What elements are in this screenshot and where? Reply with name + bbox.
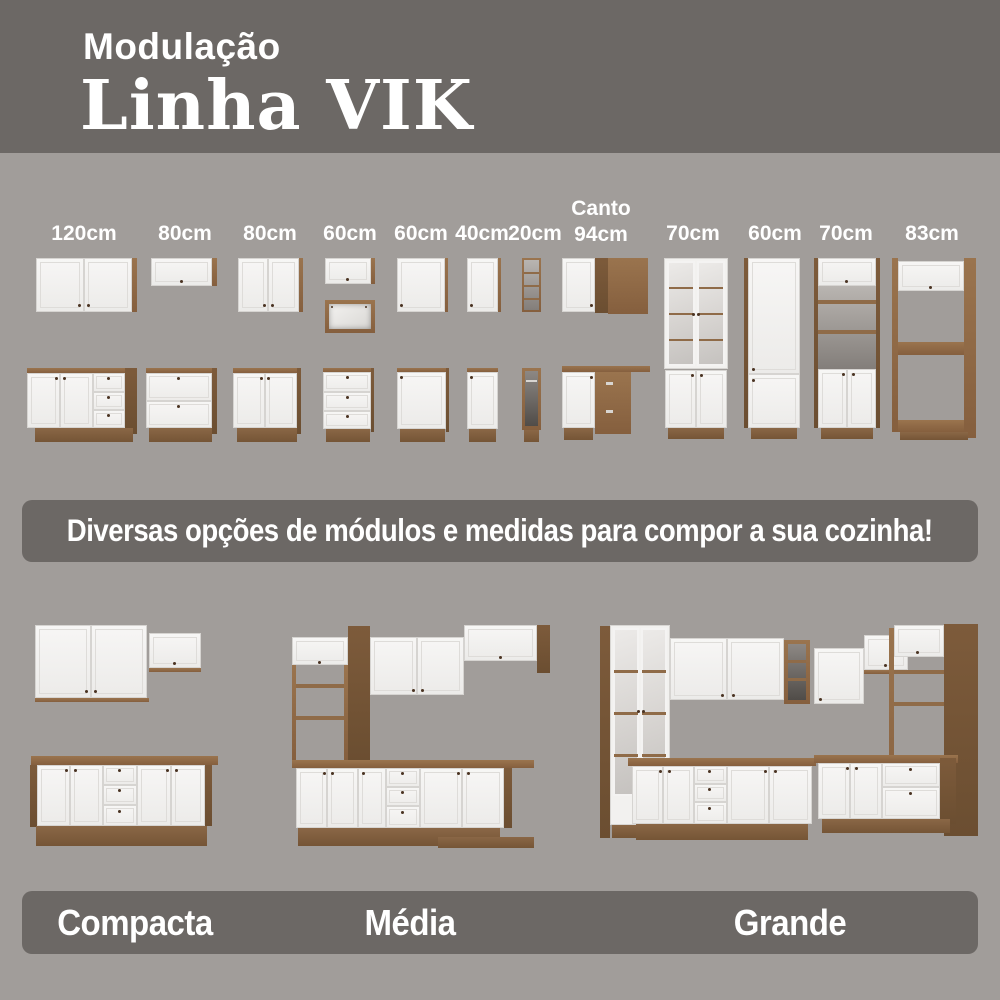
module-paneleiro-70cm-forno xyxy=(814,258,880,439)
shelf xyxy=(296,716,344,720)
module-base-80cm-gavetoes xyxy=(146,368,217,442)
shelf xyxy=(788,678,806,681)
drawer-front xyxy=(323,372,371,392)
open-compartment xyxy=(818,286,876,369)
shelf xyxy=(614,712,638,715)
wood-panel xyxy=(628,758,816,766)
module-base-80cm-portas xyxy=(233,368,301,442)
wood-side-panel xyxy=(371,368,374,432)
wood-side-panel xyxy=(30,765,37,827)
knob xyxy=(852,373,855,376)
knob xyxy=(774,770,777,773)
cabinet-door xyxy=(397,258,445,312)
cabinet-door xyxy=(358,768,386,828)
knob xyxy=(708,788,711,791)
product-infographic: Modulação Linha VIK 120cm 80cm 80cm 60cm… xyxy=(0,0,1000,1000)
knob xyxy=(175,769,178,772)
wood-panel xyxy=(31,756,218,765)
module-wall-80cm-basculante xyxy=(151,258,217,286)
cabinet-door xyxy=(670,638,727,700)
cabinet-door xyxy=(769,766,812,824)
knob xyxy=(260,377,263,380)
wood-side-panel xyxy=(446,368,449,432)
module-paneleiro-70cm-cristaleira xyxy=(664,258,728,439)
shelf xyxy=(699,287,723,289)
shelf xyxy=(788,660,806,663)
module-wall-40cm xyxy=(467,258,501,312)
knob xyxy=(401,811,404,814)
knob xyxy=(87,304,90,307)
knob xyxy=(118,769,121,772)
knob xyxy=(916,651,919,654)
knob xyxy=(331,306,333,308)
cabinet-door xyxy=(233,373,265,428)
module-wall-60cm-porta xyxy=(397,258,448,312)
knob xyxy=(855,767,858,770)
knob xyxy=(118,789,121,792)
plinth xyxy=(438,837,534,848)
shelf xyxy=(669,339,693,341)
shelf xyxy=(699,313,723,315)
module-base-120cm xyxy=(27,368,137,442)
plinth xyxy=(469,429,496,442)
module-base-20cm xyxy=(522,368,541,442)
kitchen-size-label-media: Média xyxy=(300,902,520,944)
knob xyxy=(909,768,912,771)
knob xyxy=(323,772,326,775)
wood-side-panel xyxy=(595,258,608,313)
cabinet-door xyxy=(665,370,696,428)
shelf xyxy=(642,712,666,715)
knob xyxy=(457,772,460,775)
cabinet-door xyxy=(417,637,464,695)
knob xyxy=(63,377,66,380)
knob xyxy=(362,772,365,775)
drawer-front xyxy=(323,411,371,429)
knob xyxy=(107,414,110,417)
plinth xyxy=(751,428,797,439)
module-base-40cm xyxy=(467,368,500,442)
knob xyxy=(267,377,270,380)
wood-panel xyxy=(814,755,958,763)
wood-panel xyxy=(344,665,348,760)
module-base-60cm-porta xyxy=(397,368,449,442)
knob xyxy=(692,313,695,316)
wood-panel xyxy=(212,258,217,286)
plinth xyxy=(36,826,207,846)
knob xyxy=(721,694,724,697)
wood-panel xyxy=(292,760,534,768)
towel-rail xyxy=(606,410,613,413)
module-base-canto-94cm xyxy=(562,366,650,442)
drawer-front xyxy=(882,763,940,787)
cabinet-door xyxy=(727,638,784,700)
cabinet-door xyxy=(91,625,147,698)
plinth xyxy=(237,428,297,442)
cabinet-door xyxy=(171,765,205,826)
cabinet-door xyxy=(60,373,93,428)
cabinet-door xyxy=(748,374,800,428)
towel-rail xyxy=(606,382,613,385)
wood-side-panel xyxy=(600,626,610,838)
wood-panel xyxy=(35,698,149,702)
plinth xyxy=(822,819,950,833)
shelf xyxy=(894,670,944,674)
wood-panel xyxy=(132,258,137,312)
cabinet-door xyxy=(397,372,446,429)
module-paneleiro-60cm xyxy=(744,258,800,439)
module-wall-canto-94cm xyxy=(562,258,648,314)
plinth xyxy=(35,428,133,442)
drawer-front xyxy=(694,766,727,784)
knob xyxy=(708,807,711,810)
knob xyxy=(85,690,88,693)
wood-side-panel xyxy=(537,625,550,673)
cabinet-door xyxy=(894,625,944,657)
knob xyxy=(697,313,700,316)
kitchen-size-label-grande: Grande xyxy=(680,902,900,944)
knob xyxy=(421,689,424,692)
cabinet-door xyxy=(27,373,60,428)
knob xyxy=(118,810,121,813)
knob xyxy=(637,710,640,713)
knob xyxy=(346,376,349,379)
knob xyxy=(94,690,97,693)
wood-panel xyxy=(898,420,964,432)
wood-panel xyxy=(608,258,648,314)
drawer-front xyxy=(103,785,137,805)
knob xyxy=(401,791,404,794)
wood-panel xyxy=(292,665,296,760)
shelf xyxy=(669,313,693,315)
open-compartment xyxy=(788,644,806,700)
wood-panel xyxy=(498,258,501,312)
knob xyxy=(177,405,180,408)
cabinet-door xyxy=(632,766,663,824)
plinth xyxy=(149,428,212,442)
knob xyxy=(107,377,110,380)
shelf xyxy=(524,272,539,274)
knob xyxy=(400,376,403,379)
drawer-front xyxy=(103,805,137,826)
module-wall-20cm-prateleiras xyxy=(522,258,541,312)
shelf xyxy=(614,754,638,757)
message-banner: Diversas opções de módulos e medidas par… xyxy=(22,500,978,562)
knob xyxy=(842,373,845,376)
knob xyxy=(107,396,110,399)
knob xyxy=(929,286,932,289)
wood-side-panel xyxy=(940,758,956,824)
banner-text: Diversas opções de módulos e medidas par… xyxy=(67,513,933,549)
knob xyxy=(764,770,767,773)
knob xyxy=(846,767,849,770)
drawer-front xyxy=(103,765,137,785)
module-kitchen-compacta xyxy=(28,620,223,848)
wood-side-panel xyxy=(212,368,217,434)
drawer-front xyxy=(93,410,125,428)
wood-side-panel xyxy=(205,765,212,826)
plinth xyxy=(636,824,808,840)
knob xyxy=(318,661,321,664)
knob xyxy=(668,770,671,773)
drawer-front xyxy=(386,787,420,806)
module-base-60cm-gavetas xyxy=(323,368,374,442)
knob xyxy=(590,376,593,379)
drawer-front xyxy=(386,768,420,787)
module-kitchen-grande xyxy=(598,618,980,850)
knob xyxy=(590,304,593,307)
knob xyxy=(263,304,266,307)
cabinet-door xyxy=(36,258,84,312)
towel-rail xyxy=(526,380,537,382)
knob xyxy=(346,415,349,418)
cabinet-door xyxy=(562,372,595,428)
knob xyxy=(78,304,81,307)
knob xyxy=(346,278,349,281)
plinth xyxy=(564,428,593,440)
module-wall-60cm-basculante xyxy=(325,258,375,284)
drawer-front xyxy=(93,392,125,410)
wood-panel xyxy=(898,342,964,355)
plinth xyxy=(900,432,968,440)
drawer-front xyxy=(93,373,125,392)
cabinet-door xyxy=(137,765,171,826)
cabinet-door xyxy=(265,373,297,428)
shelf xyxy=(524,298,539,300)
cabinet-door xyxy=(296,768,327,828)
cabinet-door xyxy=(818,763,850,819)
shelf xyxy=(894,702,944,706)
knob xyxy=(365,306,367,308)
knob xyxy=(166,769,169,772)
wood-side-panel xyxy=(297,368,301,434)
wood-panel xyxy=(149,668,201,672)
module-wall-80cm xyxy=(238,258,303,312)
knob xyxy=(74,769,77,772)
cabinet-door xyxy=(748,258,800,374)
cabinet-door xyxy=(696,370,727,428)
cabinet-door xyxy=(327,768,358,828)
knob xyxy=(331,772,334,775)
cabinet-door xyxy=(370,637,417,695)
wood-side-panel xyxy=(876,258,880,428)
knob xyxy=(467,772,470,775)
knob xyxy=(700,374,703,377)
knob xyxy=(499,656,502,659)
knob xyxy=(346,396,349,399)
shelf xyxy=(669,287,693,289)
knob xyxy=(819,698,822,701)
cabinet-door xyxy=(467,372,498,429)
shelf xyxy=(818,330,876,334)
cabinet-door xyxy=(35,625,91,698)
knob xyxy=(401,772,404,775)
module-modulo-83cm-geladeira xyxy=(892,258,976,440)
wood-side-panel xyxy=(125,368,137,434)
knob xyxy=(752,368,755,371)
wood-panel xyxy=(299,258,303,312)
knob xyxy=(271,304,274,307)
knob xyxy=(470,304,473,307)
plinth xyxy=(524,430,539,442)
knob xyxy=(642,710,645,713)
plinth xyxy=(668,428,724,439)
knob xyxy=(691,374,694,377)
shelf xyxy=(642,670,666,673)
knob xyxy=(173,662,176,665)
drawer-front xyxy=(323,392,371,411)
wood-panel xyxy=(445,258,448,312)
cabinet-door xyxy=(727,766,769,824)
shelf xyxy=(642,754,666,757)
plinth xyxy=(400,429,445,442)
plinth xyxy=(326,429,370,442)
cabinet-door xyxy=(663,766,694,824)
cabinet-door xyxy=(818,369,847,428)
knob xyxy=(708,770,711,773)
drawer-front xyxy=(694,802,727,824)
knob xyxy=(909,792,912,795)
wood-side-panel xyxy=(504,768,512,828)
knob xyxy=(55,377,58,380)
cabinet-door xyxy=(70,765,103,826)
kitchen-size-label-compacta: Compacta xyxy=(25,902,245,944)
knob xyxy=(180,280,183,283)
knob xyxy=(752,379,755,382)
cabinet-door xyxy=(847,369,876,428)
cabinet-door xyxy=(814,648,864,704)
module-nicho-60cm xyxy=(325,300,375,333)
knob xyxy=(470,376,473,379)
cabinet-door xyxy=(37,765,70,826)
shelf xyxy=(524,285,539,287)
drawer-front xyxy=(694,784,727,802)
cabinet-door xyxy=(84,258,132,312)
knob xyxy=(732,694,735,697)
wood-panel xyxy=(595,372,631,434)
knob xyxy=(884,664,887,667)
cabinet-door xyxy=(420,768,462,828)
knob xyxy=(845,280,848,283)
module-wall-120cm xyxy=(36,258,137,312)
plinth xyxy=(821,428,873,439)
knob xyxy=(659,770,662,773)
drawer-front xyxy=(386,806,420,828)
shelf xyxy=(296,684,344,688)
cabinet-door xyxy=(462,768,504,828)
wood-panel xyxy=(964,258,976,438)
cabinet-door xyxy=(850,763,882,819)
knob xyxy=(177,377,180,380)
knob xyxy=(65,769,68,772)
shelf xyxy=(699,339,723,341)
wood-side-panel xyxy=(348,626,370,760)
wood-panel xyxy=(371,258,375,284)
knob xyxy=(400,304,403,307)
knob xyxy=(412,689,415,692)
shelf xyxy=(818,300,876,304)
module-kitchen-media xyxy=(288,618,538,848)
shelf xyxy=(614,670,638,673)
